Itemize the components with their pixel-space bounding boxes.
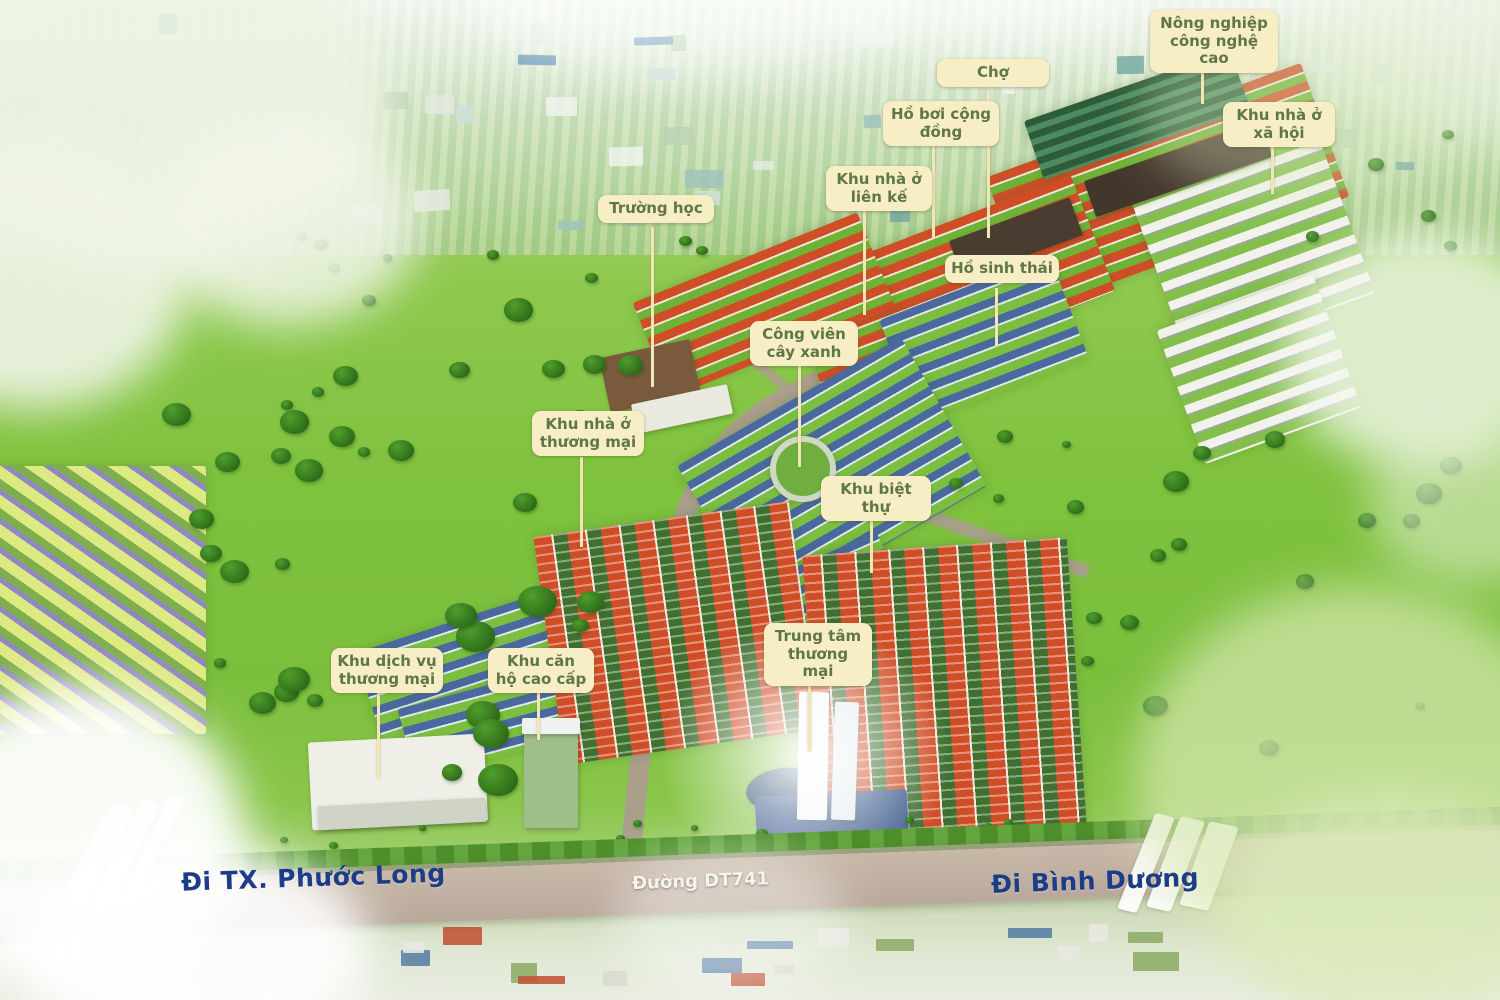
tree [1421,210,1437,222]
tree [249,692,276,714]
tree [220,560,249,584]
tree [1193,446,1211,460]
tree [905,817,913,824]
tree [1265,431,1286,448]
callout-trung-tam-thuong-mai: Trung tâm thương mại [764,623,872,686]
tree [993,494,1004,503]
tree [542,360,565,378]
town-building [1133,952,1179,971]
tree [473,719,509,748]
callout-truong-hoc: Trường học [598,195,714,223]
tree [1171,538,1187,551]
tree [487,250,499,259]
town-building [403,942,424,953]
cloud [150,115,420,325]
callout-khu-nha-o-xa-hoi: Khu nhà ở xã hội [1223,102,1335,147]
leader-truong-hoc [651,227,654,387]
tree [583,355,606,373]
town-building [1128,932,1163,943]
leader-nha-o-lien-ke [863,211,866,315]
tree [307,694,323,707]
callout-khu-biet-thu: Khu biệt thự [821,476,931,521]
tree [572,619,589,633]
tree [1306,231,1319,242]
leader-cong-vien [798,366,801,467]
tree [504,298,534,322]
town-building [876,939,913,951]
tree [691,825,698,830]
tree [200,545,221,562]
tree [442,764,463,781]
leader-nha-o-thuong-mai [580,457,583,547]
tree [696,246,707,255]
tree [478,764,518,796]
masterplan-aerial-render: Đi TX. Phước Long Đường DT741 Đi Bình Dư… [0,0,1500,1000]
town-building [1058,946,1080,958]
tree [189,509,214,529]
leader-can-ho [537,693,540,740]
tree [162,403,191,426]
tree [329,842,337,849]
tree [358,447,370,457]
callout-ho-sinh-thai: Hồ sinh thái [945,255,1059,283]
tree [333,366,358,386]
tree [388,440,414,461]
tree [280,410,309,433]
tree [214,658,227,668]
tree [577,591,604,613]
tree [419,825,426,830]
town-building [414,974,451,988]
town-building [443,927,481,945]
callout-cho: Chợ [937,59,1049,87]
leader-ho-sinh-thai [995,288,998,346]
town-building [603,971,627,987]
building [522,718,580,734]
callout-khu-nha-o-lien-ke: Khu nhà ở liên kế [826,166,932,211]
tree [281,400,293,410]
tree [215,452,240,472]
leader-nha-o-xa-hoi [1271,146,1274,194]
tree [295,459,323,481]
callout-khu-dich-vu-thuong-mai: Khu dịch vụ thương mại [331,648,443,693]
tree [329,426,355,447]
tree [518,586,557,617]
building [524,730,578,828]
leader-ho-boi [932,146,935,239]
callout-khu-can-ho-cao-cap: Khu căn hộ cao cấp [488,648,594,693]
town-building [1008,928,1052,938]
callout-khu-nha-o-thuong-mai: Khu nhà ở thương mại [532,411,644,456]
road-label-dt741: Đường DT741 [632,869,753,894]
town-building [1089,924,1109,942]
callout-ho-boi-cong-dong: Hồ bơi cộng đồng [883,101,999,146]
road-label-binh-duong: Đi Bình Dương [991,864,1162,899]
tree [1150,549,1166,562]
tree [618,355,643,375]
tree [513,493,536,512]
leader-dich-vu [377,693,380,778]
tree [449,362,470,378]
town-building [518,976,565,985]
cloud [615,845,845,995]
callout-cong-vien-cay-xanh: Công viên cây xanh [750,321,858,366]
tree [1296,574,1314,588]
tree [1163,471,1189,492]
callout-nong-nghiep-cong-nghe-cao: Nông nghiệp công nghệ cao [1150,10,1278,73]
